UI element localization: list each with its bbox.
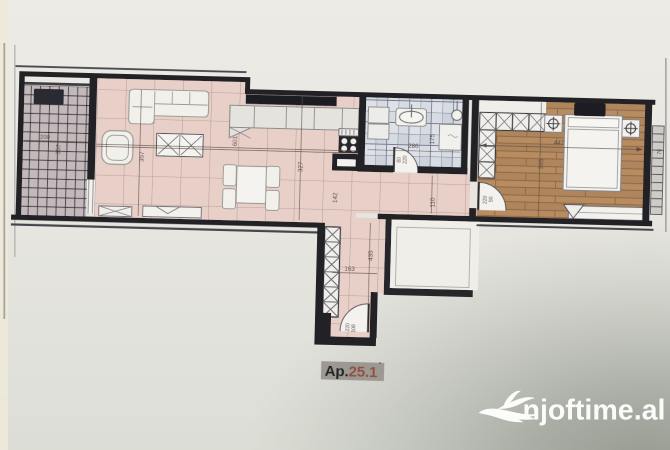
svg-text:142: 142 [332,192,339,203]
svg-text:435: 435 [368,250,375,261]
svg-text:327: 327 [297,161,304,172]
svg-text:Ap.25.1: Ap.25.1 [324,363,378,381]
svg-text:220: 220 [403,155,409,164]
svg-text:175: 175 [429,133,436,144]
svg-text:365: 365 [538,158,545,169]
svg-text:163: 163 [344,266,355,273]
svg-text:357: 357 [139,151,146,162]
svg-text:200: 200 [40,135,50,141]
svg-text:357: 357 [55,144,62,155]
svg-text:76: 76 [657,149,663,155]
svg-text:601: 601 [232,135,239,146]
svg-text:447: 447 [554,140,565,147]
svg-text:286: 286 [408,143,419,150]
svg-text:108: 108 [351,324,357,333]
svg-text:110: 110 [429,197,436,208]
svg-text:90: 90 [489,196,495,202]
svg-text:njoftime.al: njoftime.al [523,395,666,427]
